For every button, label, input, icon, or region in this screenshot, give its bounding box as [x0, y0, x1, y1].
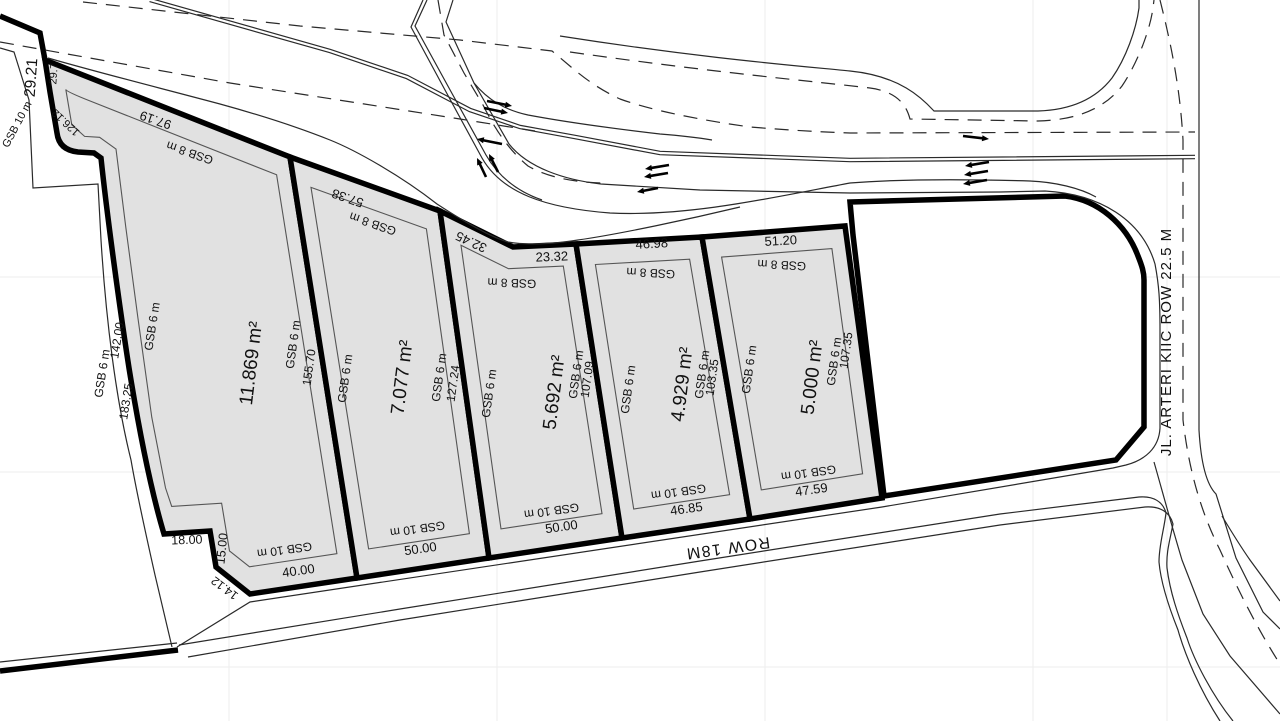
svg-text:GSB 8 m: GSB 8 m [626, 265, 675, 282]
svg-text:29.7: 29.7 [47, 63, 60, 85]
svg-text:18.00: 18.00 [171, 532, 203, 547]
svg-text:51.20: 51.20 [764, 232, 797, 249]
svg-text:23.32: 23.32 [535, 248, 568, 264]
svg-text:JL. ARTERI KIIC ROW 22.5 M: JL. ARTERI KIIC ROW 22.5 M [1158, 228, 1175, 456]
svg-text:29.21: 29.21 [22, 58, 42, 98]
svg-text:46.98: 46.98 [635, 235, 668, 252]
svg-text:GSB 8 m: GSB 8 m [487, 275, 536, 291]
svg-text:GSB 8 m: GSB 8 m [757, 257, 806, 274]
